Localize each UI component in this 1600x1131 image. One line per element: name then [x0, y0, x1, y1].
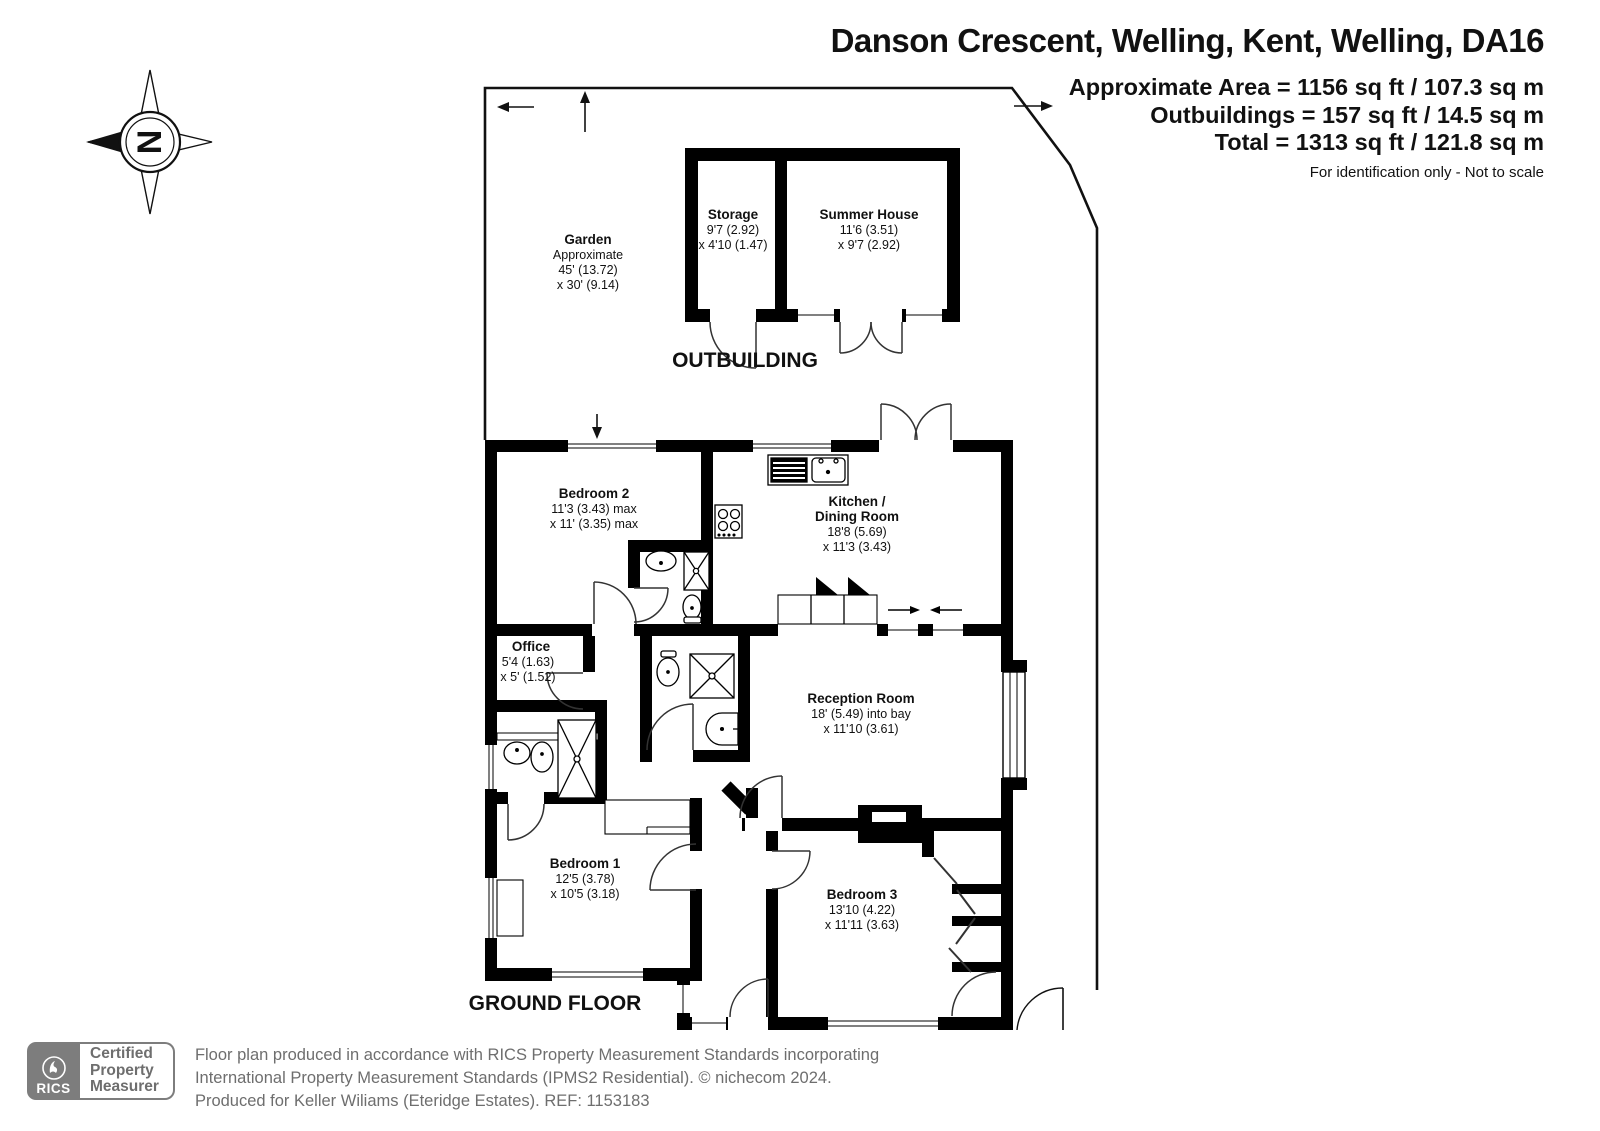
outbuilding-label: OUTBUILDING: [672, 349, 818, 372]
floor-plan-drawing: N: [0, 0, 1600, 1131]
arrow-up-icon: [580, 91, 590, 103]
label-bedroom1: Bedroom 1 12'5 (3.78) x 10'5 (3.18): [550, 856, 621, 901]
svg-text:18'8 (5.69): 18'8 (5.69): [827, 525, 886, 539]
svg-text:5'4 (1.63): 5'4 (1.63): [502, 655, 554, 669]
rics-logo: RICS: [27, 1042, 80, 1100]
svg-text:13'10 (4.22): 13'10 (4.22): [829, 903, 895, 917]
svg-text:x 11'11 (3.63): x 11'11 (3.63): [825, 918, 899, 932]
label-kitchen: Kitchen / Dining Room 18'8 (5.69) x 11'3…: [815, 494, 899, 554]
badge-line: Measurer: [90, 1079, 159, 1096]
svg-text:Dining Room: Dining Room: [815, 509, 899, 524]
arrow-left-icon: [497, 102, 509, 112]
ground-floor-label: GROUND FLOOR: [469, 992, 642, 1015]
label-bedroom2: Bedroom 2 11'3 (3.43) max x 11' (3.35) m…: [550, 486, 639, 531]
label-bedroom3: Bedroom 3 13'10 (4.22) x 11'11 (3.63): [825, 887, 899, 932]
svg-text:x 11'3 (3.43): x 11'3 (3.43): [823, 540, 891, 554]
shower-room-top: [646, 551, 709, 623]
doors: [508, 322, 996, 1017]
floorplan-page: Danson Crescent, Welling, Kent, Welling,…: [0, 0, 1600, 1131]
badge-line: Property: [90, 1063, 159, 1080]
kitchen-sink-icon: [768, 455, 848, 485]
footer-text: Floor plan produced in accordance with R…: [195, 1042, 879, 1113]
svg-text:11'6 (3.51): 11'6 (3.51): [840, 223, 898, 237]
svg-text:x 11' (3.35) max: x 11' (3.35) max: [550, 517, 639, 531]
svg-text:Kitchen /: Kitchen /: [828, 494, 885, 509]
certified-measurer-badge: Certified Property Measurer: [80, 1042, 175, 1100]
svg-text:Reception Room: Reception Room: [807, 691, 914, 706]
svg-text:45' (13.72): 45' (13.72): [558, 263, 617, 277]
label-reception: Reception Room 18' (5.49) into bay x 11'…: [807, 691, 914, 736]
windows-and-openings: [485, 309, 1025, 1030]
footer-line-1: Floor plan produced in accordance with R…: [195, 1044, 879, 1067]
hob-icon: [715, 505, 742, 538]
bay-window: [1003, 672, 1025, 778]
svg-text:x 4'10 (1.47): x 4'10 (1.47): [698, 238, 767, 252]
footer-line-3: Produced for Keller Wiliams (Eteridge Es…: [195, 1090, 879, 1113]
svg-text:x 9'7 (2.92): x 9'7 (2.92): [838, 238, 900, 252]
bathroom-left: [497, 720, 598, 798]
svg-text:11'3 (3.43) max: 11'3 (3.43) max: [551, 502, 637, 516]
svg-text:Approximate: Approximate: [553, 248, 623, 262]
arrow-down-icon: [592, 427, 602, 439]
svg-text:Summer House: Summer House: [819, 207, 919, 222]
kitchen-units: [778, 577, 877, 624]
svg-text:18' (5.49) into bay: 18' (5.49) into bay: [811, 707, 911, 721]
rics-lion-icon: [41, 1055, 67, 1081]
svg-text:Bedroom 1: Bedroom 1: [550, 856, 621, 871]
label-office: Office 5'4 (1.63) x 5' (1.52): [500, 639, 555, 684]
badge-line: Certified: [90, 1046, 159, 1063]
svg-text:Bedroom 3: Bedroom 3: [827, 887, 898, 902]
rics-label: RICS: [36, 1081, 70, 1096]
svg-text:Storage: Storage: [708, 207, 759, 222]
hatch-arrows: [888, 606, 962, 614]
label-storage: Storage 9'7 (2.92) x 4'10 (1.47): [698, 207, 767, 252]
shower-room-middle: [657, 651, 738, 745]
compass-north-letter: N: [131, 130, 169, 155]
svg-text:x 30' (9.14): x 30' (9.14): [557, 278, 619, 292]
svg-text:Office: Office: [512, 639, 551, 654]
label-summer-house: Summer House 11'6 (3.51) x 9'7 (2.92): [819, 207, 919, 252]
footer-line-2: International Property Measurement Stand…: [195, 1067, 879, 1090]
footer: RICS Certified Property Measurer Floor p…: [27, 1042, 879, 1113]
label-garden: Garden Approximate 45' (13.72) x 30' (9.…: [553, 232, 623, 292]
compass-icon: N: [86, 70, 212, 214]
svg-text:9'7 (2.92): 9'7 (2.92): [707, 223, 759, 237]
svg-text:x 10'5 (3.18): x 10'5 (3.18): [550, 887, 619, 901]
arrow-right-icon: [1041, 101, 1053, 111]
svg-text:Bedroom 2: Bedroom 2: [559, 486, 630, 501]
svg-text:x 11'10 (3.61): x 11'10 (3.61): [823, 722, 898, 736]
svg-text:Garden: Garden: [564, 232, 611, 247]
svg-text:12'5 (3.78): 12'5 (3.78): [555, 872, 614, 886]
svg-text:x 5' (1.52): x 5' (1.52): [500, 670, 555, 684]
